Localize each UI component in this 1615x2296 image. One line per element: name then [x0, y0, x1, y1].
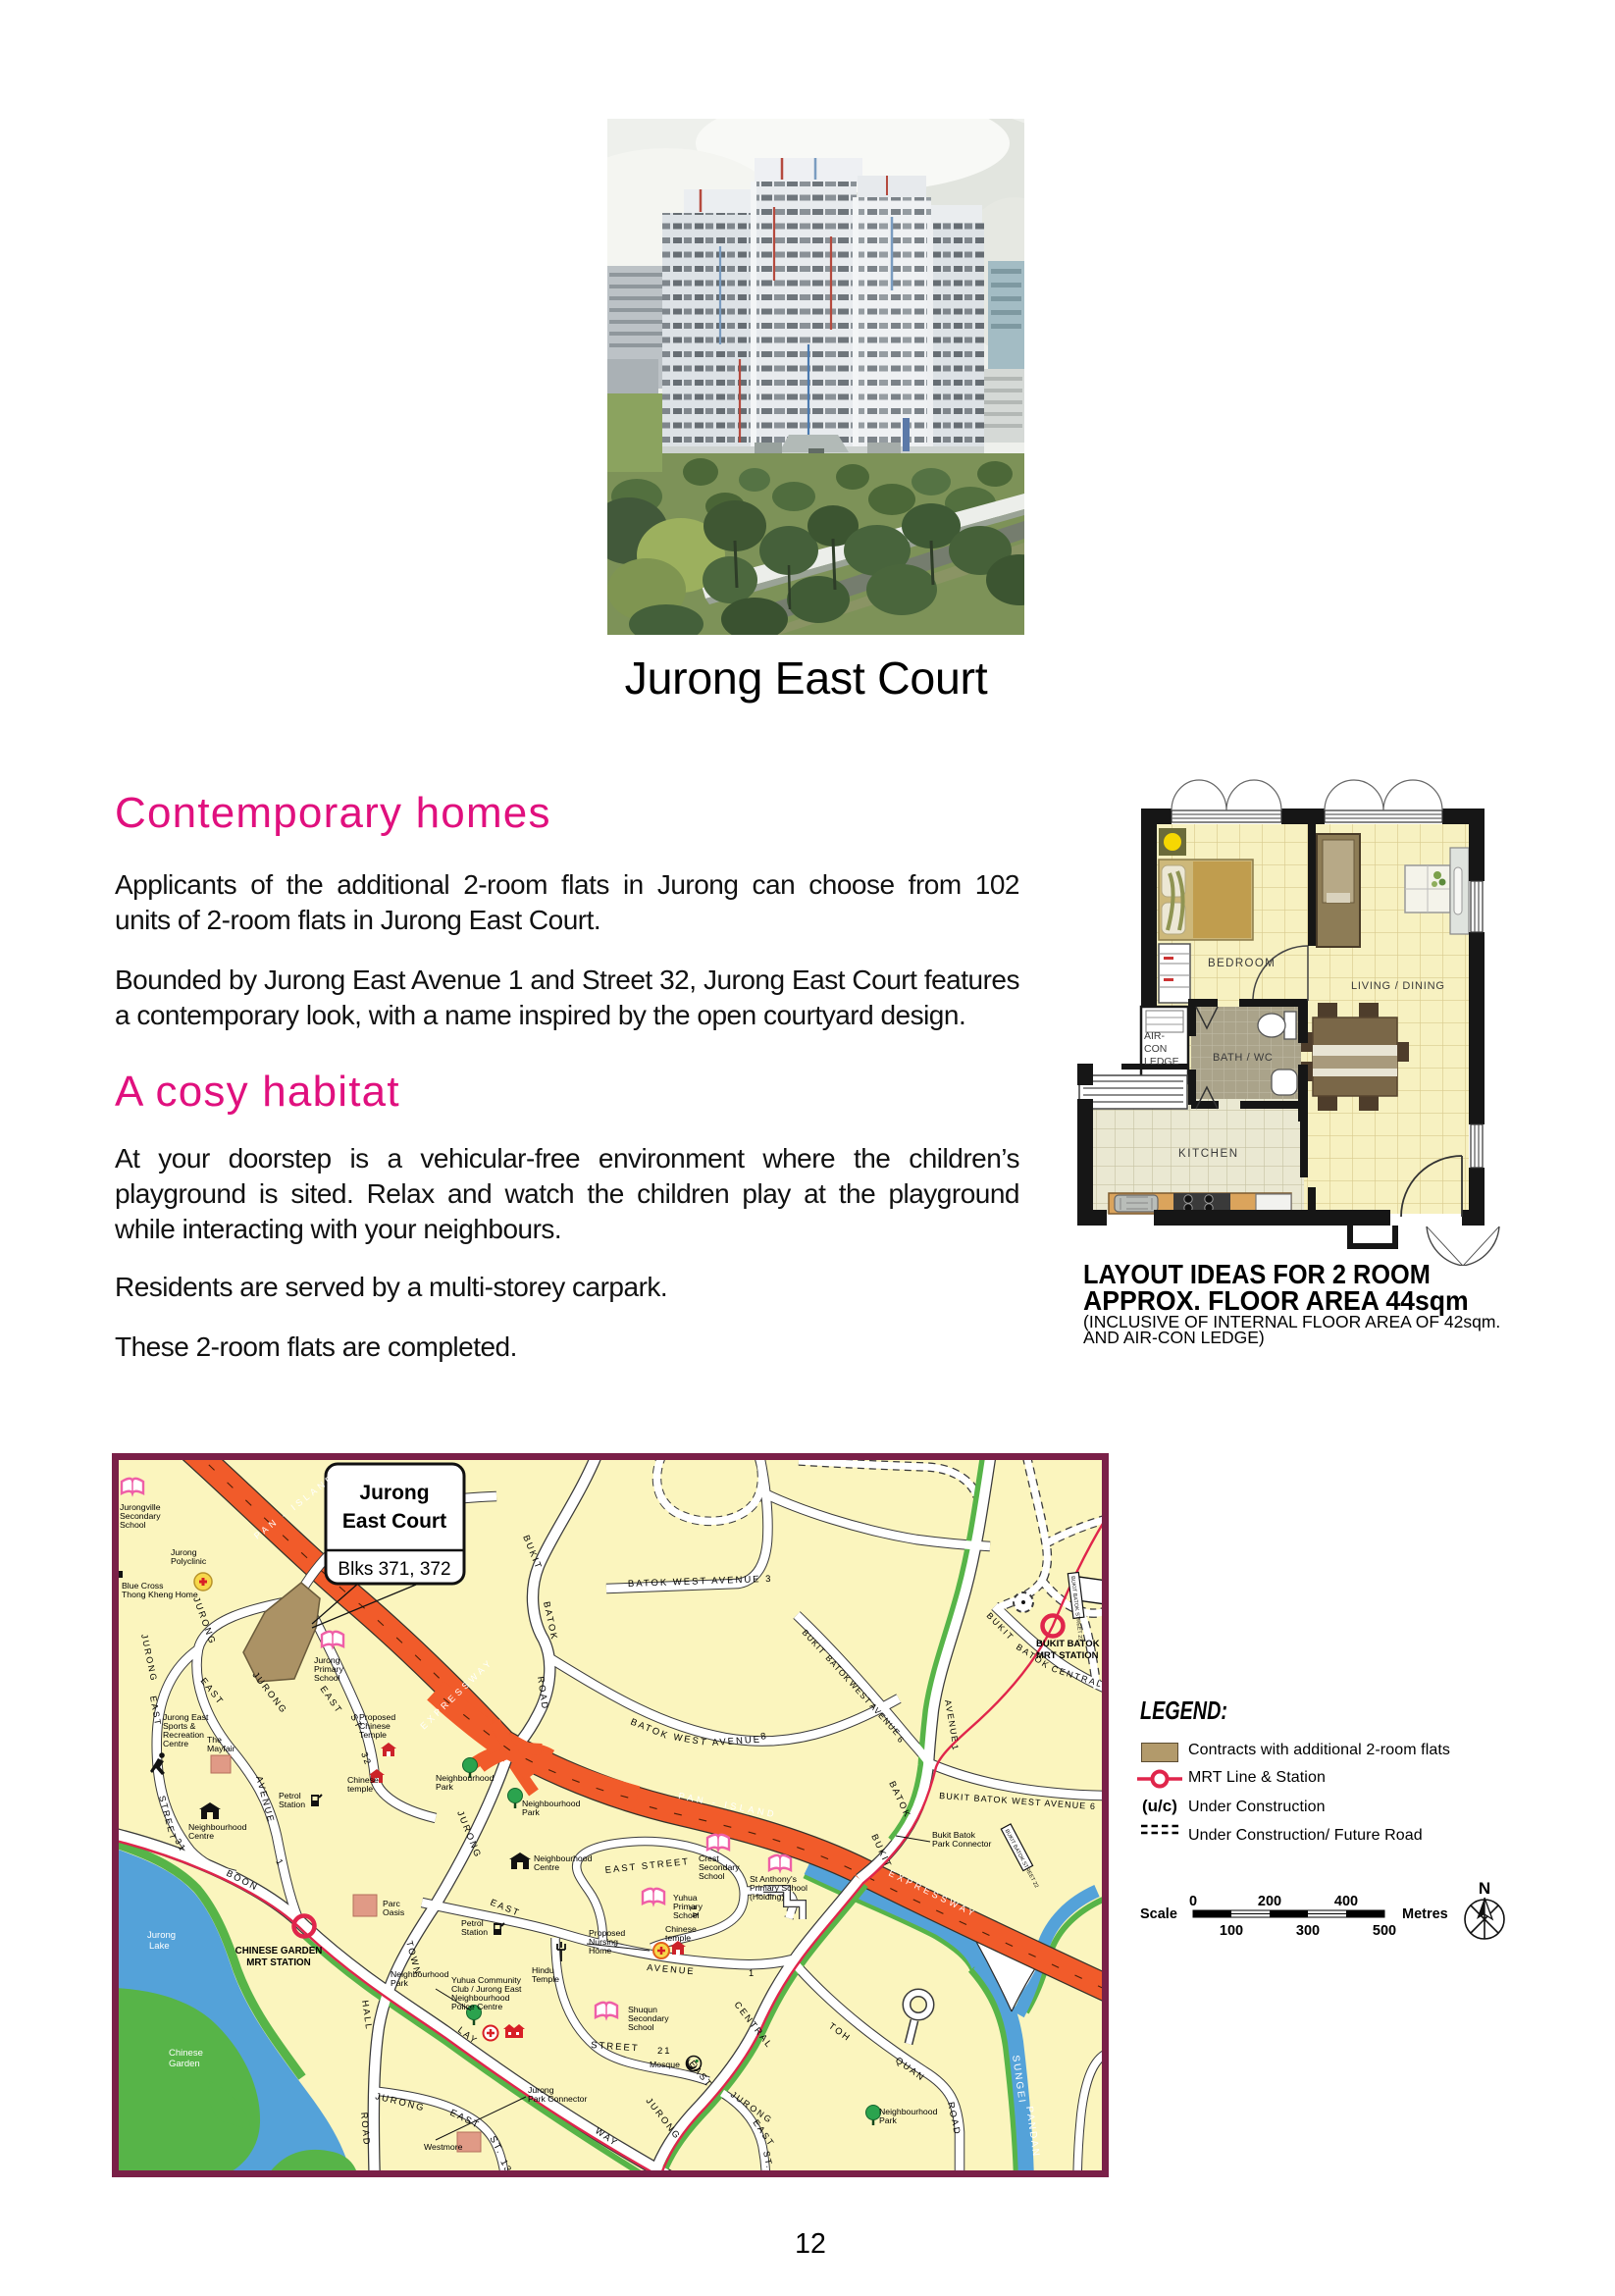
svg-text:Home: Home — [589, 1946, 611, 1956]
svg-text:Jurong: Jurong — [359, 1482, 429, 1504]
svg-text:School: School — [120, 1520, 146, 1530]
svg-text:Polyclinic: Polyclinic — [171, 1556, 207, 1566]
svg-text:300: 300 — [1296, 1923, 1320, 1939]
svg-text:Centre: Centre — [188, 1831, 214, 1841]
svg-text:AIR-: AIR- — [1144, 1030, 1166, 1042]
svg-text:1: 1 — [749, 1968, 755, 1978]
svg-text:CHINESE GARDEN: CHINESE GARDEN — [235, 1946, 323, 1957]
svg-text:Jurong: Jurong — [147, 1930, 176, 1941]
svg-text:Park: Park — [436, 1782, 454, 1792]
svg-text:School: School — [673, 1910, 700, 1920]
svg-text:Oasis: Oasis — [383, 1907, 405, 1917]
svg-text:BUKIT BATOK: BUKIT BATOK — [1036, 1639, 1100, 1649]
svg-text:N: N — [1479, 1879, 1490, 1898]
svg-text:LEDGE: LEDGE — [1144, 1056, 1179, 1068]
svg-text:temple: temple — [665, 1933, 691, 1943]
svg-text:Garden: Garden — [169, 2059, 200, 2069]
svg-text:400: 400 — [1334, 1894, 1358, 1909]
svg-text:Westmore: Westmore — [424, 2142, 463, 2152]
svg-text:School: School — [314, 1673, 340, 1683]
svg-text:(Holding): (Holding) — [750, 1892, 784, 1902]
svg-text:Centre: Centre — [534, 1862, 559, 1872]
svg-text:Park: Park — [391, 1978, 409, 1988]
svg-text:Temple: Temple — [359, 1730, 387, 1740]
svg-text:Park: Park — [522, 1807, 541, 1817]
svg-text:Centre: Centre — [163, 1739, 188, 1748]
svg-text:CON: CON — [1144, 1043, 1167, 1055]
svg-text:Park: Park — [879, 2115, 898, 2125]
svg-text:500: 500 — [1373, 1923, 1396, 1939]
svg-text:MRT STATION: MRT STATION — [246, 1957, 310, 1968]
svg-text:Blks 371, 372: Blks 371, 372 — [338, 1559, 450, 1580]
svg-text:Chinese: Chinese — [169, 2048, 203, 2059]
svg-text:Scale: Scale — [1140, 1906, 1177, 1922]
svg-text:Park Connector: Park Connector — [932, 1839, 991, 1849]
svg-text:Temple: Temple — [532, 1974, 559, 1984]
svg-text:School: School — [699, 1871, 725, 1881]
svg-text:temple: temple — [347, 1784, 373, 1794]
svg-text:200: 200 — [1258, 1894, 1281, 1909]
svg-text:Station: Station — [461, 1927, 488, 1937]
svg-text:21: 21 — [657, 2046, 672, 2057]
svg-text:KITCHEN: KITCHEN — [1178, 1148, 1239, 1160]
svg-text:LIVING / DINING: LIVING / DINING — [1351, 980, 1445, 992]
svg-text:Lake: Lake — [149, 1941, 170, 1952]
svg-text:School: School — [628, 2022, 654, 2032]
svg-text:Station: Station — [279, 1800, 305, 1809]
svg-text:Mayfair: Mayfair — [207, 1744, 235, 1753]
svg-text:Mosque: Mosque — [650, 2060, 680, 2069]
svg-text:BATH / WC: BATH / WC — [1213, 1052, 1273, 1064]
svg-text:East Court: East Court — [342, 1510, 446, 1533]
svg-text:Metres: Metres — [1402, 1906, 1448, 1922]
svg-text:BEDROOM: BEDROOM — [1208, 958, 1276, 969]
svg-text:Thong Kheng Home: Thong Kheng Home — [122, 1590, 198, 1599]
svg-text:Park Connector: Park Connector — [528, 2094, 587, 2104]
svg-text:0: 0 — [1189, 1894, 1197, 1909]
svg-text:100: 100 — [1220, 1923, 1243, 1939]
